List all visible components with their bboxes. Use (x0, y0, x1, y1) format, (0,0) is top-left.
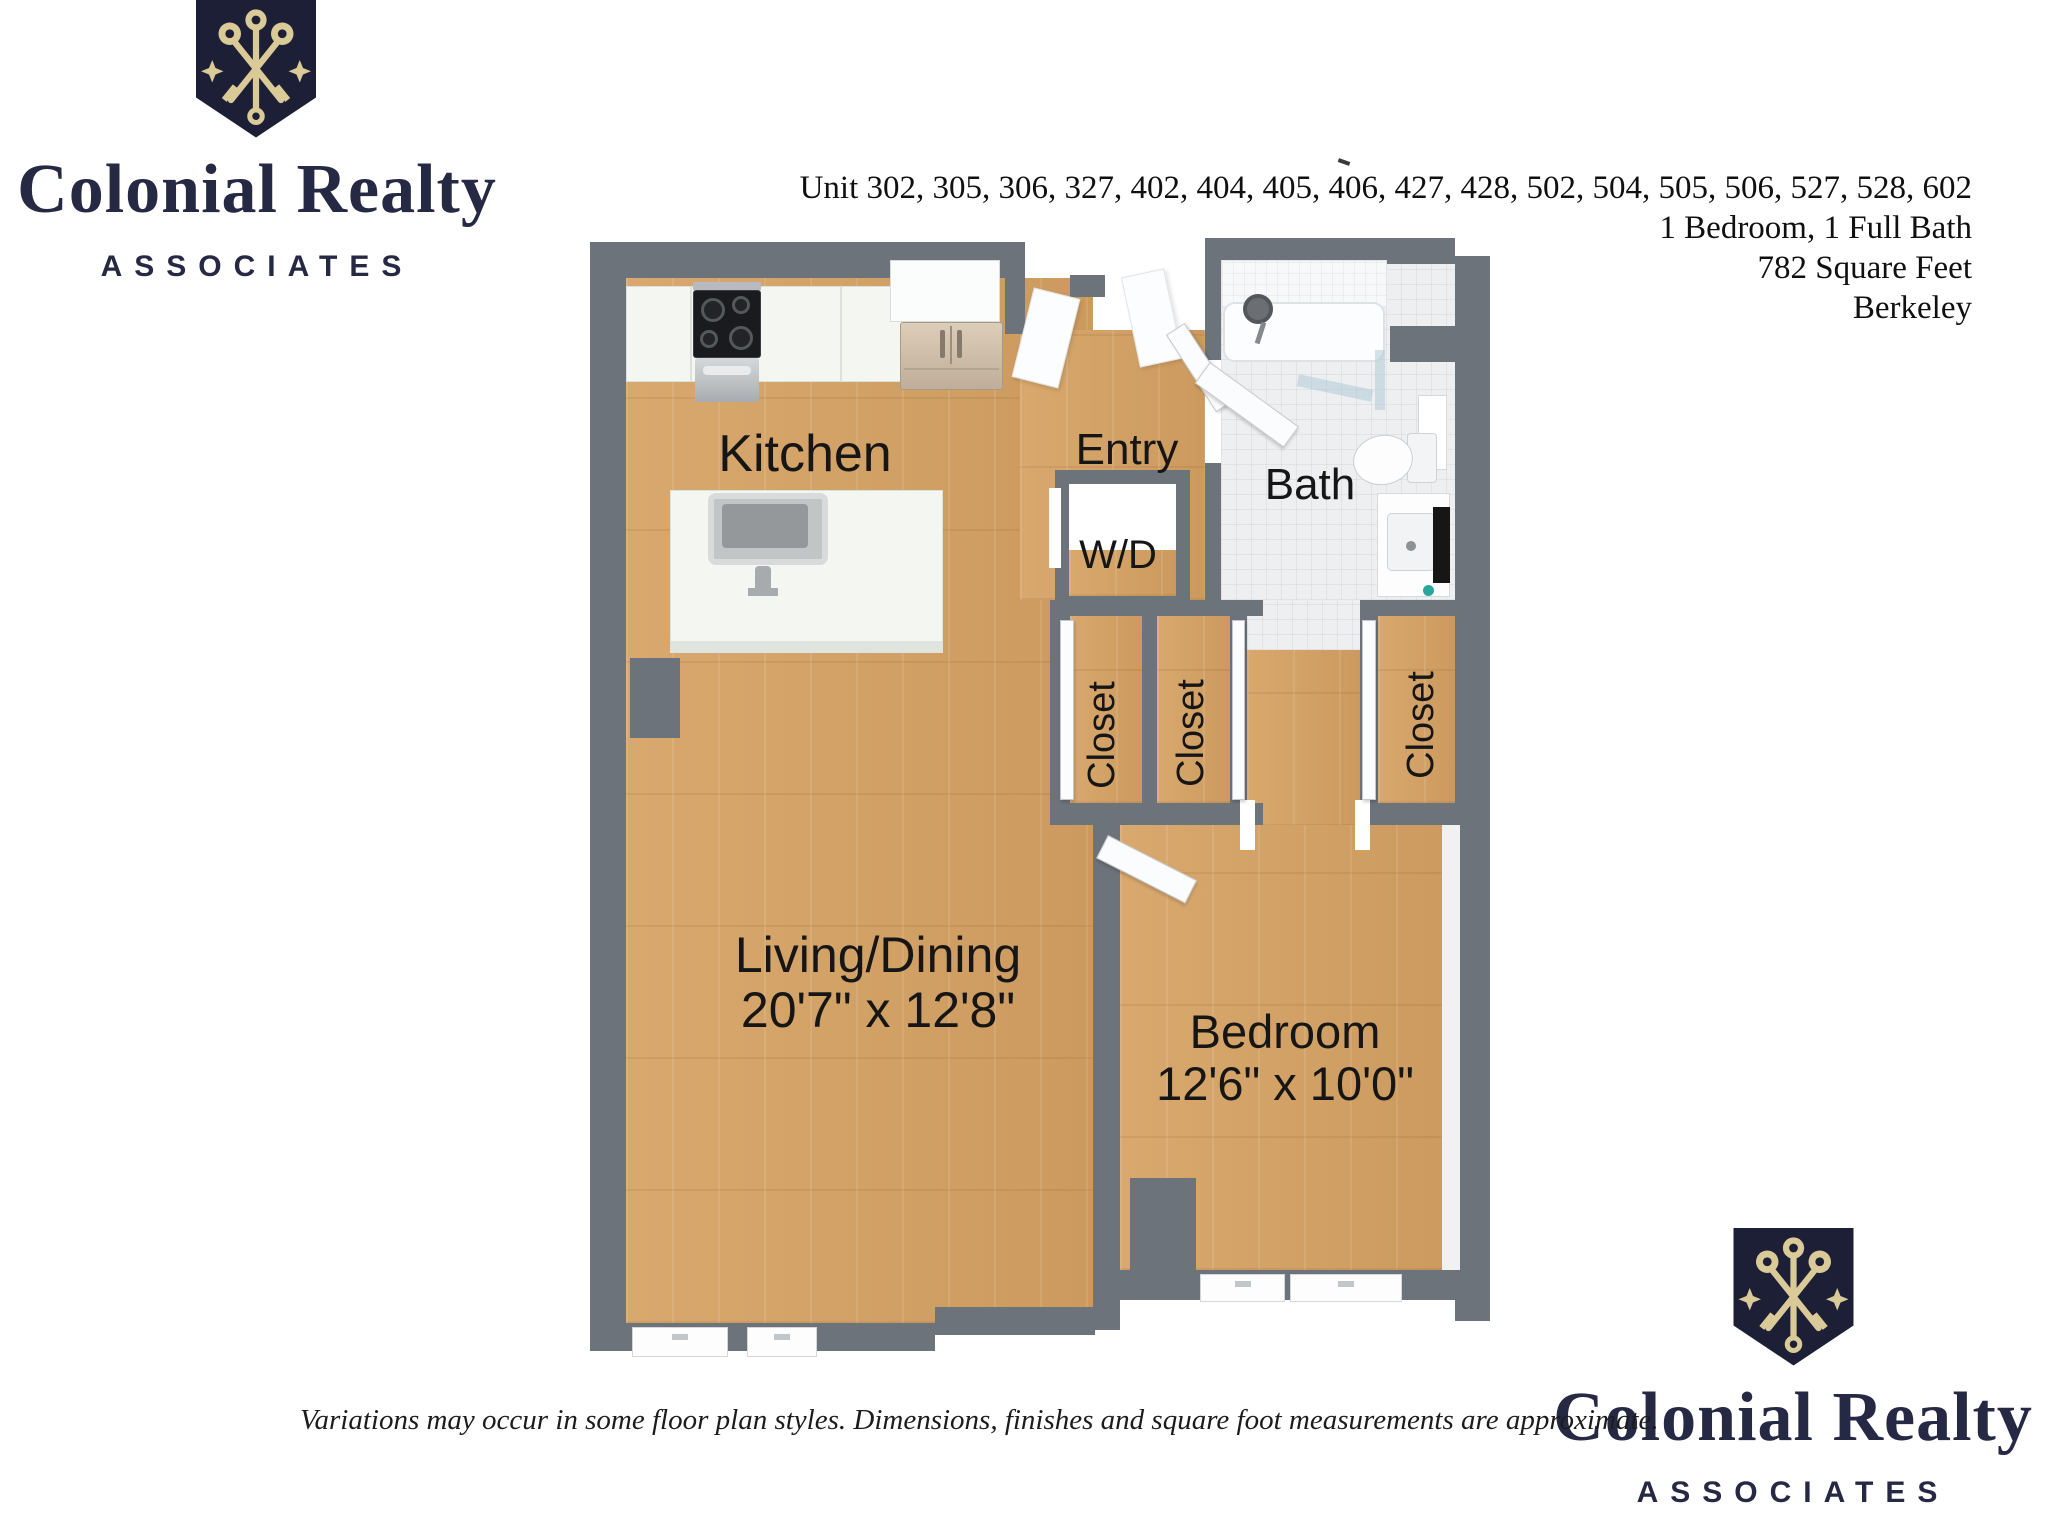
shower-glass (1375, 350, 1385, 410)
room-label-bedroom: Bedroom 12'6" x 10'0" (1085, 1006, 1485, 1110)
brand-subname: ASSOCIATES (2, 250, 512, 284)
room-label-entry: Entry (1052, 425, 1202, 475)
wall-block (1130, 1178, 1196, 1290)
closet-door (1060, 620, 1074, 800)
room-label-closet-2: Closet (1170, 663, 1210, 803)
fridge-handle (940, 330, 945, 358)
wall-segment (1205, 463, 1221, 603)
fridge-cabinet (890, 260, 1000, 322)
washer-dryer-door-gap (1049, 488, 1061, 568)
brand-name: Colonial Realty (2, 150, 512, 230)
floor-plan-page: { "branding": { "name": "Colonial Realty… (0, 0, 2048, 1514)
closet-door (1362, 620, 1376, 800)
crossed-keys-shield-icon (1730, 1228, 1857, 1368)
burner (700, 330, 718, 348)
cabinet-seam (840, 286, 842, 382)
door-jamb (1240, 800, 1255, 850)
wall-column (630, 658, 680, 738)
burner (729, 326, 753, 350)
oven-front (695, 358, 759, 402)
bedroom-dimensions: 12'6" x 10'0" (1085, 1058, 1485, 1110)
living-dining-dimensions: 20'7" x 12'8" (678, 983, 1078, 1038)
soap-accent (1423, 585, 1434, 596)
window (632, 1327, 728, 1357)
shower-head (1243, 294, 1273, 324)
door-jamb (1355, 800, 1370, 850)
cabinet-seam (690, 286, 692, 382)
burner (732, 296, 750, 314)
wall-segment (590, 242, 626, 1348)
kitchen-counter (626, 286, 916, 382)
wall-segment (1378, 803, 1455, 825)
sink-faucet-base (748, 588, 778, 596)
stove-trim (693, 282, 761, 290)
oven-handle (703, 366, 751, 375)
burner (701, 298, 725, 322)
wall-segment (1205, 260, 1221, 360)
unit-numbers: Unit 302, 305, 306, 327, 402, 404, 405, … (800, 168, 1972, 208)
stray-mark (1338, 158, 1351, 166)
fridge-handle (957, 330, 962, 358)
window (1200, 1274, 1285, 1302)
disclaimer-text: Variations may occur in some floor plan … (300, 1404, 1659, 1437)
brand-subname: ASSOCIATES (1538, 1476, 2048, 1510)
room-label-washer-dryer: W/D (1068, 533, 1168, 578)
wall-segment (935, 1307, 1095, 1335)
crossed-keys-shield-icon (192, 0, 320, 140)
logo-top-left: Colonial Realty ASSOCIATES (0, 0, 520, 300)
tile-floor-threshold (1247, 600, 1360, 650)
room-label-kitchen: Kitchen (705, 424, 905, 484)
vanity-faucet (1406, 541, 1416, 551)
room-label-bath: Bath (1240, 460, 1380, 510)
fridge-door-seam (950, 326, 952, 364)
wall-segment (1070, 275, 1105, 297)
room-label-closet-1: Closet (1081, 665, 1121, 805)
fridge-drawer-seam (904, 368, 999, 370)
vanity-mirror (1433, 507, 1450, 583)
room-label-closet-3: Closet (1400, 655, 1440, 795)
window (1290, 1274, 1402, 1302)
logo-bottom-right: Colonial Realty ASSOCIATES (1530, 1220, 2048, 1514)
living-dining-name: Living/Dining (678, 928, 1078, 983)
wall-segment (1005, 242, 1025, 334)
sink-basin (722, 504, 808, 548)
stove-cooktop (693, 290, 761, 358)
bedroom-name: Bedroom (1085, 1006, 1485, 1058)
room-label-living-dining: Living/Dining 20'7" x 12'8" (678, 928, 1078, 1038)
window (747, 1327, 817, 1357)
wall-segment (1142, 600, 1157, 825)
wall-segment (1455, 256, 1490, 1321)
wall-duct (1390, 326, 1468, 362)
floor-plan: Kitchen Entry Bath W/D Closet Closet Clo… (590, 238, 1492, 1350)
closet-door (1232, 620, 1245, 800)
